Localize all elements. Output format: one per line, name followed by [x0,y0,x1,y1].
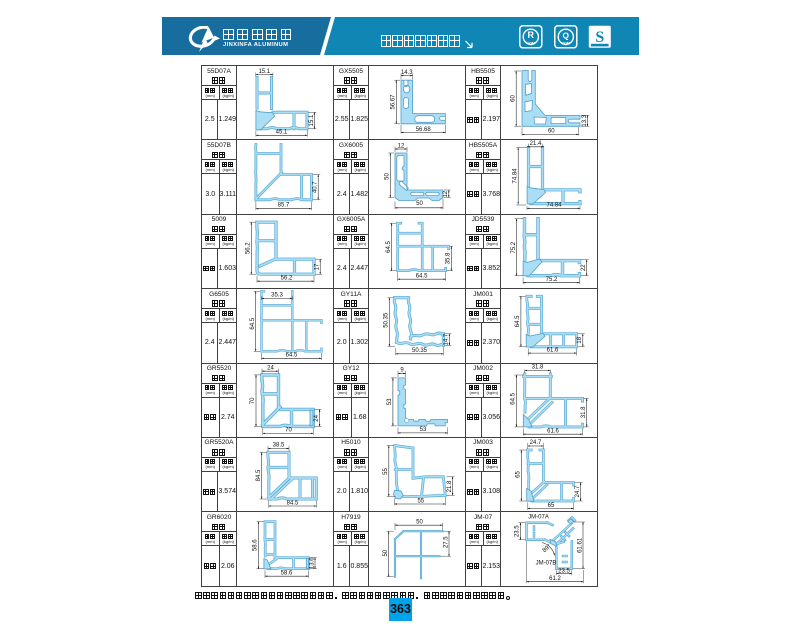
svg-text:35.3: 35.3 [271,293,283,299]
svg-text:24: 24 [314,414,320,421]
svg-text:70: 70 [250,396,256,403]
svg-text:64.5: 64.5 [515,315,521,327]
svg-text:56.68: 56.68 [416,127,432,133]
svg-text:13.6: 13.6 [309,557,315,569]
svg-text:17: 17 [315,263,321,270]
svg-text:18: 18 [577,336,583,343]
svg-text:75.2: 75.2 [546,277,558,283]
svg-text:50: 50 [416,520,423,526]
svg-text:56.67: 56.67 [391,94,397,110]
svg-text:Q: Q [563,31,570,41]
svg-text:61.61: 61.61 [577,538,583,554]
svg-text:55: 55 [383,467,389,474]
svg-text:84.5: 84.5 [256,469,262,481]
svg-text:15.1: 15.1 [258,69,270,75]
svg-text:74.84: 74.84 [512,168,518,184]
svg-text:23.5: 23.5 [558,569,570,575]
svg-text:S: S [595,29,604,46]
svg-text:56.2: 56.2 [246,241,252,253]
svg-text:61.6: 61.6 [547,348,559,354]
svg-text:74.84: 74.84 [546,203,562,209]
svg-text:53: 53 [387,397,393,404]
svg-text:60: 60 [510,95,516,102]
svg-text:CQM: CQM [562,41,570,45]
svg-text:70: 70 [285,427,292,433]
svg-text:50: 50 [385,173,391,180]
svg-text:14.7: 14.7 [444,333,450,345]
svg-text:61.2: 61.2 [549,576,561,582]
svg-text:13.3: 13.3 [582,114,588,126]
svg-text:24.7: 24.7 [530,440,542,446]
svg-text:64.5: 64.5 [511,392,517,404]
svg-text:89°: 89° [542,544,553,555]
svg-text:53: 53 [420,427,427,433]
svg-text:31.8: 31.8 [532,364,544,370]
svg-text:12: 12 [443,191,449,198]
svg-text:60: 60 [548,128,555,134]
svg-text:15.1: 15.1 [309,114,315,126]
svg-text:JM-07B: JM-07B [536,561,557,567]
svg-text:65: 65 [548,503,555,509]
svg-text:31.8: 31.8 [581,405,587,417]
svg-text:27.5: 27.5 [443,536,449,548]
svg-text:61.6: 61.6 [547,428,559,434]
svg-text:75.2: 75.2 [511,241,517,253]
svg-text:40.7: 40.7 [312,181,318,193]
svg-text:56.2: 56.2 [281,275,293,281]
svg-text:JM-07A: JM-07A [528,515,549,521]
svg-text:58.6: 58.6 [253,539,259,551]
svg-text:CQM: CQM [527,41,535,45]
svg-text:58.6: 58.6 [281,571,293,577]
svg-text:21.4: 21.4 [530,141,542,147]
svg-text:24.7: 24.7 [575,485,581,497]
svg-text:55: 55 [417,498,424,504]
svg-text:21.8: 21.8 [447,480,453,492]
svg-text:85.7: 85.7 [278,203,290,209]
svg-text:14.3: 14.3 [401,70,413,76]
svg-text:24: 24 [267,365,274,371]
svg-text:45.1: 45.1 [276,130,288,136]
svg-text:64.5: 64.5 [386,240,392,252]
svg-text:64.5: 64.5 [416,273,428,279]
svg-text:50.35: 50.35 [384,312,390,328]
svg-text:35.8: 35.8 [446,252,452,264]
svg-text:23.5: 23.5 [515,525,521,537]
svg-text:64.5: 64.5 [250,317,256,329]
svg-text:50: 50 [383,550,389,557]
svg-text:38.5: 38.5 [273,443,285,449]
svg-text:50.35: 50.35 [412,348,428,354]
svg-text:65: 65 [516,470,522,477]
svg-text:12: 12 [398,144,405,150]
svg-text:84.5: 84.5 [287,500,299,506]
svg-text:9: 9 [400,367,404,373]
svg-text:R: R [528,30,535,40]
svg-text:50: 50 [416,202,423,208]
svg-text:64.5: 64.5 [286,353,298,359]
svg-text:22: 22 [581,263,587,270]
